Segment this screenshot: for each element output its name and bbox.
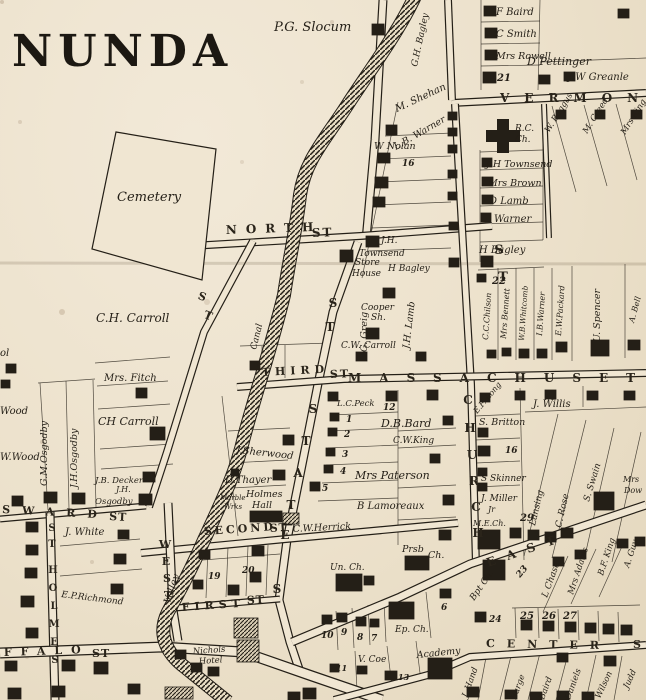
building [337,613,347,622]
lot-line [98,404,170,409]
owner-label: W Nolan [374,141,416,152]
owner-label: Marble [219,494,246,502]
lot-number: 8 [357,633,364,643]
lot-number: 23 [514,564,530,581]
building [585,623,596,633]
street-label: W [158,538,172,551]
lot-line [618,612,619,642]
lot-number: 12 [383,403,396,413]
lot-number: 2 [343,430,350,440]
nunda-village-map: NORTHSTVERMONTHIRDSTMASSACHUSETSECONDSTF… [0,0,646,700]
building [6,364,16,373]
building [449,222,458,230]
owner-label: F Baird [495,7,534,18]
building [326,448,335,456]
street-label: NORTH [226,220,323,237]
street-label: S [196,289,208,304]
lot-line [38,379,95,383]
owner-label: Warner [494,214,533,225]
building [385,671,397,680]
lot-line [328,445,398,448]
owner-label: J. White [63,527,105,538]
building [356,352,367,361]
lot-line [380,156,451,159]
owner-label: D.B.Bard [380,417,431,430]
street-label: ST [246,593,265,607]
building [582,692,594,700]
street-label: U [467,448,478,462]
lot-line [60,569,142,576]
owner-label: Ep. Ch. [394,625,429,635]
building [228,585,239,595]
owner-label: J.H. [379,236,398,246]
building [175,650,186,659]
street-label: CENTER [486,637,611,652]
owner-label: E.F. Long [471,380,503,416]
owner-label: V. Coe [358,655,386,665]
owner-label: Hotel [198,655,224,667]
building [515,391,525,400]
building [475,612,486,622]
building [72,493,85,504]
building [389,602,414,619]
building [111,584,123,594]
street-label: T [287,498,296,512]
owner-label: D.Thayer [224,475,272,486]
building [427,390,438,400]
street-label: H [464,421,475,435]
owner-label: Store [355,258,380,268]
street-label: T [48,539,56,550]
owner-label: ol [0,348,9,359]
building [21,596,34,607]
owner-label: Mrs Adams [566,546,591,597]
building [617,539,628,548]
lot-number: 1 [346,415,352,425]
lot-number: 22 [491,276,506,287]
owner-label: Holmes [245,489,283,500]
building [449,258,459,267]
building [440,589,451,598]
building [252,546,264,556]
owner-label: J H Townsend [484,159,552,170]
building [8,688,21,699]
owner-label: Mrs Bennett [499,287,512,340]
owner-label: E.W.Packard [554,285,567,337]
building [628,340,640,350]
building [26,545,38,555]
building [624,391,635,400]
cemetery-parcel [92,132,216,280]
street-label: L [50,601,57,612]
building [322,615,332,624]
lot-number: 9 [341,628,348,638]
building [477,274,486,282]
building-hatched [237,640,259,662]
building [483,72,496,83]
building [199,550,210,559]
building [478,446,490,456]
owner-label: B Lamoreaux [356,501,425,512]
building [250,361,260,370]
building [1,380,10,388]
owner-label: Jr [486,505,496,514]
owner-label: Wrks [224,503,242,511]
owner-label: C.H. Carroll [96,311,170,325]
lot-number: 10 [321,631,334,641]
lot-number: 16 [402,159,415,169]
street-label: E [280,528,289,542]
owner-label: Mrs Brown [487,178,542,189]
building [448,170,457,178]
owner-label: I.B.Warner [535,290,547,337]
building [618,9,629,18]
building [519,349,529,358]
building [545,390,556,399]
lot-line [481,43,540,44]
owner-label: H Bagley [387,264,431,274]
building [328,428,337,436]
lot-line [398,517,456,520]
lot-number: 7 [371,634,378,644]
lot-line [598,611,599,641]
street-label: E [162,555,170,568]
building [288,692,300,700]
building [510,528,521,538]
building [604,656,616,666]
street-label: O [49,583,58,594]
building [139,494,152,505]
building [565,622,576,632]
owner-label: L.C.Peck [336,399,375,409]
lot-line [476,461,520,463]
lot-line [480,240,543,242]
street-label: S [329,296,338,310]
owner-label: W.Wood [0,452,40,463]
building [283,435,294,445]
owner-label: J.H.Osgodby [69,428,80,490]
building [448,112,457,120]
building [448,192,457,200]
owner-label: Ch. [515,135,531,145]
building [603,624,614,634]
building [621,625,632,635]
street-label: ST [92,647,110,660]
lot-number: 13 [398,672,410,682]
building [25,568,37,578]
street-label: S [51,655,58,666]
street-label: H [472,526,483,540]
street-label: R [469,474,480,488]
owner-label: R.C. [514,124,534,134]
building [543,621,554,631]
owner-label: Cemetery [117,190,182,205]
building-hatched [234,618,258,638]
street-label: ST [312,225,334,240]
building [370,619,379,627]
building [557,653,568,662]
building [430,454,440,463]
building [26,628,38,638]
owner-label: Academy [415,645,461,661]
owner-label: Canal [249,323,265,351]
lot-line [374,202,451,205]
street-label: S [633,638,641,651]
owner-label: D Pettinger [526,55,592,68]
building [273,470,285,480]
lot-line [95,357,170,363]
owner-label: Judd [621,668,639,692]
owner-label: Mrs Paterson [354,469,430,482]
street-label: C [471,500,481,514]
building [357,666,367,674]
building [340,250,353,262]
street-label: T [302,434,311,448]
paper-fold-crease [0,263,646,264]
lot-number: 19 [208,572,221,582]
building [303,688,316,699]
building [443,416,453,425]
lot-line [538,608,539,638]
owner-label: Mrs [622,475,639,484]
owner-label: Sh. [371,313,386,323]
lot-number: 11 [336,663,347,673]
owner-label: Wood [0,406,28,417]
lot-number: 16 [505,446,518,456]
street-label: H [48,565,57,576]
building [383,288,395,298]
lot-number: 4 [340,467,346,477]
lot-number: 24 [488,615,502,625]
building [443,495,454,505]
map-title: NUNDA [12,26,233,77]
lot-line [475,438,520,440]
building [556,342,567,352]
building [428,658,452,679]
owner-label: S Skinner [481,474,526,484]
owner-label: G.M.Osgodby [39,420,50,486]
lot-number: 27 [562,611,577,622]
building [448,128,457,136]
building [537,349,547,358]
owner-label: Baird [537,675,555,700]
building [118,530,129,539]
building [208,667,219,676]
owner-label: J.H. [114,485,131,494]
owner-label: U. Spencer [592,288,603,342]
owner-label: Barge [509,673,528,700]
lot-number: 6 [441,603,448,613]
owner-label: J. Willis [531,399,571,410]
building [128,684,140,694]
building [372,24,384,35]
street-label: S [48,523,55,534]
owner-label: Dow [623,486,642,495]
building [26,522,38,532]
building [375,177,388,188]
lot-line [228,428,290,431]
building [193,580,203,589]
building [62,660,75,671]
owner-label: C Smith [496,29,537,40]
lot-line [480,150,543,152]
building [52,686,65,697]
lot-line [266,545,268,595]
lot-number: 26 [541,611,556,622]
lot-line [60,539,140,546]
building [487,350,496,358]
building [481,256,493,267]
building [448,145,457,153]
street-label: E [50,637,58,648]
lot-line [515,608,516,638]
building [481,213,491,222]
owner-label: L Chase [540,561,562,600]
owner-label: M. Shehan [393,82,448,115]
lot-number: 20 [241,566,255,576]
lot-line [512,605,640,608]
building [416,352,426,361]
building [539,75,550,84]
church-st-north-fill [448,0,452,100]
owner-label: A. Bell [627,295,643,324]
lot-line [475,414,520,416]
building [324,465,333,473]
building [386,391,397,401]
owner-label: Mrs. Fitch [103,373,157,384]
lot-number: 25 [519,611,534,622]
building [478,483,487,491]
map-canvas: NORTHSTVERMONTHIRDSTMASSACHUSETSECONDSTF… [0,0,646,700]
owner-label: D Lamb [488,196,529,207]
owner-label: J W Greanle [566,72,629,83]
owner-label: B.F. King [596,536,618,578]
building [143,472,155,482]
building [386,125,397,135]
owner-label: C.C.Chilson [481,292,493,340]
owner-label: J. Miller [479,494,518,504]
building [330,413,339,421]
building [478,428,488,437]
owner-label: J.H. Lamb [401,301,418,351]
building-hatched [165,687,193,699]
building [484,6,496,16]
street-label: M [48,619,59,630]
owner-label: Un. Ch. [330,563,365,573]
lot-number: 29 [519,513,534,524]
owner-label: Hall [251,500,272,511]
building [587,391,598,400]
street-label: FFALO [4,643,90,659]
building [366,236,379,247]
building [439,530,451,540]
owner-label: S. Britton [479,417,525,428]
owner-label: CH Carroll [98,415,159,428]
owner-label: Bpt Ch. [468,569,497,604]
building [150,427,165,440]
building [336,574,362,591]
owner-label: G. Greig [359,312,370,352]
owner-label: H Bagley [478,245,526,256]
lot-line [100,444,172,449]
owner-label: Prsb [401,544,424,555]
building [94,662,108,674]
lot-line [398,485,456,488]
street-label: T [326,320,335,334]
owner-label: C.W.King [393,436,434,446]
church-st-fill [455,104,476,565]
lot-number: 21 [496,73,511,84]
owner-label: Cooper [361,303,395,313]
building [310,482,320,491]
building [405,556,429,570]
building [44,492,57,503]
street-label: C [463,393,473,407]
owner-label: Osgodby [95,497,133,507]
owner-label: W.B.Whitcomb [517,285,530,341]
lot-line [578,610,579,640]
owner-label: G.H. Bagley [410,12,431,68]
owner-label: House [351,269,381,279]
building [594,492,614,510]
street-label: A [292,466,303,480]
street-label: ST [109,510,128,524]
lot-line [326,462,398,465]
building [364,576,374,585]
owner-label: Wilson [594,670,615,700]
owner-label: P.G. Slocum [273,20,351,35]
building [5,661,17,671]
owner-label: C. Rose [554,493,571,529]
lot-line [558,609,559,639]
lot-number: 5 [322,484,328,494]
owner-label: Daniels [563,667,584,700]
street-label: S [309,402,318,416]
owner-label: Ch. [428,550,444,561]
owner-label: M.E.Ch. [472,519,506,528]
lot-line [481,21,540,22]
building [502,348,511,356]
building [378,153,390,163]
building [114,554,126,564]
building [356,617,366,626]
street-label: S [273,582,282,596]
lot-number: 3 [342,450,348,460]
building [136,388,147,398]
street-label: FIRST [181,597,245,614]
lot-line [93,380,96,507]
building [373,197,385,207]
